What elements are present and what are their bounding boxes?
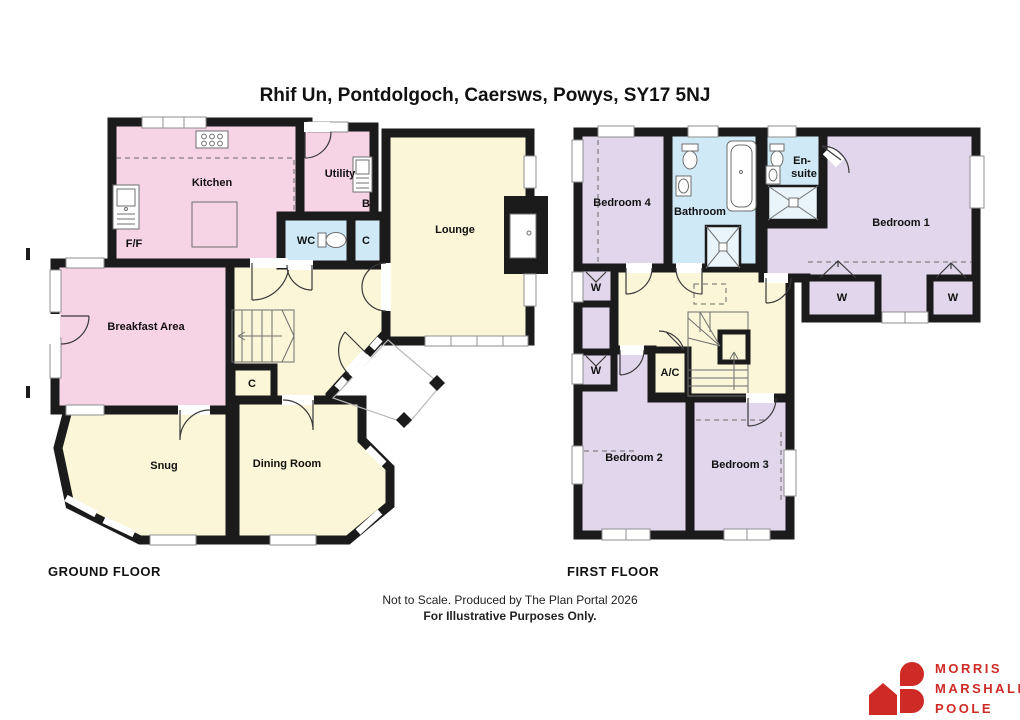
floorplan-page: Rhif Un, Pontdolgoch, Caersws, Powys, SY… [0, 0, 1020, 720]
footer-disclaimer: Not to Scale. Produced by The Plan Porta… [0, 593, 1020, 607]
footer-illustrative: For Illustrative Purposes Only. [0, 609, 1020, 623]
label-wardrobe-bed2: W [591, 365, 602, 377]
label-breakfast-area: Breakfast Area [107, 321, 185, 333]
label-hall-cupboard: C [248, 378, 256, 390]
wall-tick [26, 386, 30, 398]
label-wc-cupboard: C [362, 235, 370, 247]
toilet-symbol-wc [318, 233, 346, 248]
ground-floor-caption: GROUND FLOOR [48, 564, 161, 579]
logo-leaf-top [900, 662, 924, 686]
label-utility: Utility [325, 168, 356, 180]
label-snug: Snug [150, 460, 178, 472]
bathtub-symbol [727, 141, 756, 211]
label-bedroom-2: Bedroom 2 [605, 452, 662, 464]
toilet-symbol-ensuite [770, 144, 784, 167]
label-wardrobe-bed1-right: W [948, 292, 959, 304]
house-icon [869, 683, 897, 715]
room-snug [58, 410, 230, 540]
label-wardrobe-bed4: W [591, 282, 602, 294]
label-wardrobe-bed1-left: W [837, 292, 848, 304]
label-boiler: B [362, 198, 370, 210]
logo-line-morris: MORRIS [935, 659, 1020, 679]
basin-symbol-bathroom [676, 176, 691, 196]
first-floor-caption: FIRST FLOOR [567, 564, 659, 579]
logo-line-poole: POOLE [935, 699, 1020, 719]
label-dining-room: Dining Room [253, 458, 322, 470]
logo-line-marshall: MARSHALL [935, 679, 1020, 699]
fireplace [504, 196, 548, 274]
washing-machine-symbol [353, 157, 372, 192]
label-bathroom: Bathroom [674, 206, 726, 218]
label-wc: WC [297, 235, 315, 247]
label-kitchen: Kitchen [192, 177, 233, 189]
sink-symbol [113, 185, 139, 229]
shower-symbol-bathroom [706, 226, 740, 268]
label-bedroom-3: Bedroom 3 [711, 459, 768, 471]
porch-post [396, 412, 412, 428]
label-ensuite-line1: En- [793, 155, 811, 167]
toilet-symbol-bathroom [682, 144, 698, 169]
label-airing-cupboard: A/C [661, 367, 680, 379]
shower-symbol-ensuite [768, 186, 818, 220]
floorplan-drawing: Kitchen Utility B WC C Lounge F/F Breakf… [0, 0, 1020, 660]
first-floor-plan: Bedroom 4 Bathroom En- suite Bedroom 1 W… [572, 126, 984, 540]
wall-tick [26, 248, 30, 260]
label-bedroom-1: Bedroom 1 [872, 217, 929, 229]
label-bedroom-4: Bedroom 4 [593, 197, 651, 209]
basin-symbol-ensuite [766, 166, 780, 184]
logo-leaf-bottom [900, 689, 924, 713]
label-fridge-freezer: F/F [126, 238, 143, 250]
hob-symbol [196, 131, 228, 148]
agent-logo: MORRIS MARSHALL POOLE [869, 656, 1020, 719]
label-lounge: Lounge [435, 224, 475, 236]
agent-logo-icon [869, 656, 927, 716]
label-ensuite-line2: suite [791, 168, 817, 180]
agent-logo-text: MORRIS MARSHALL POOLE [935, 659, 1020, 719]
ground-floor-plan: Kitchen Utility B WC C Lounge F/F Breakf… [26, 117, 548, 545]
